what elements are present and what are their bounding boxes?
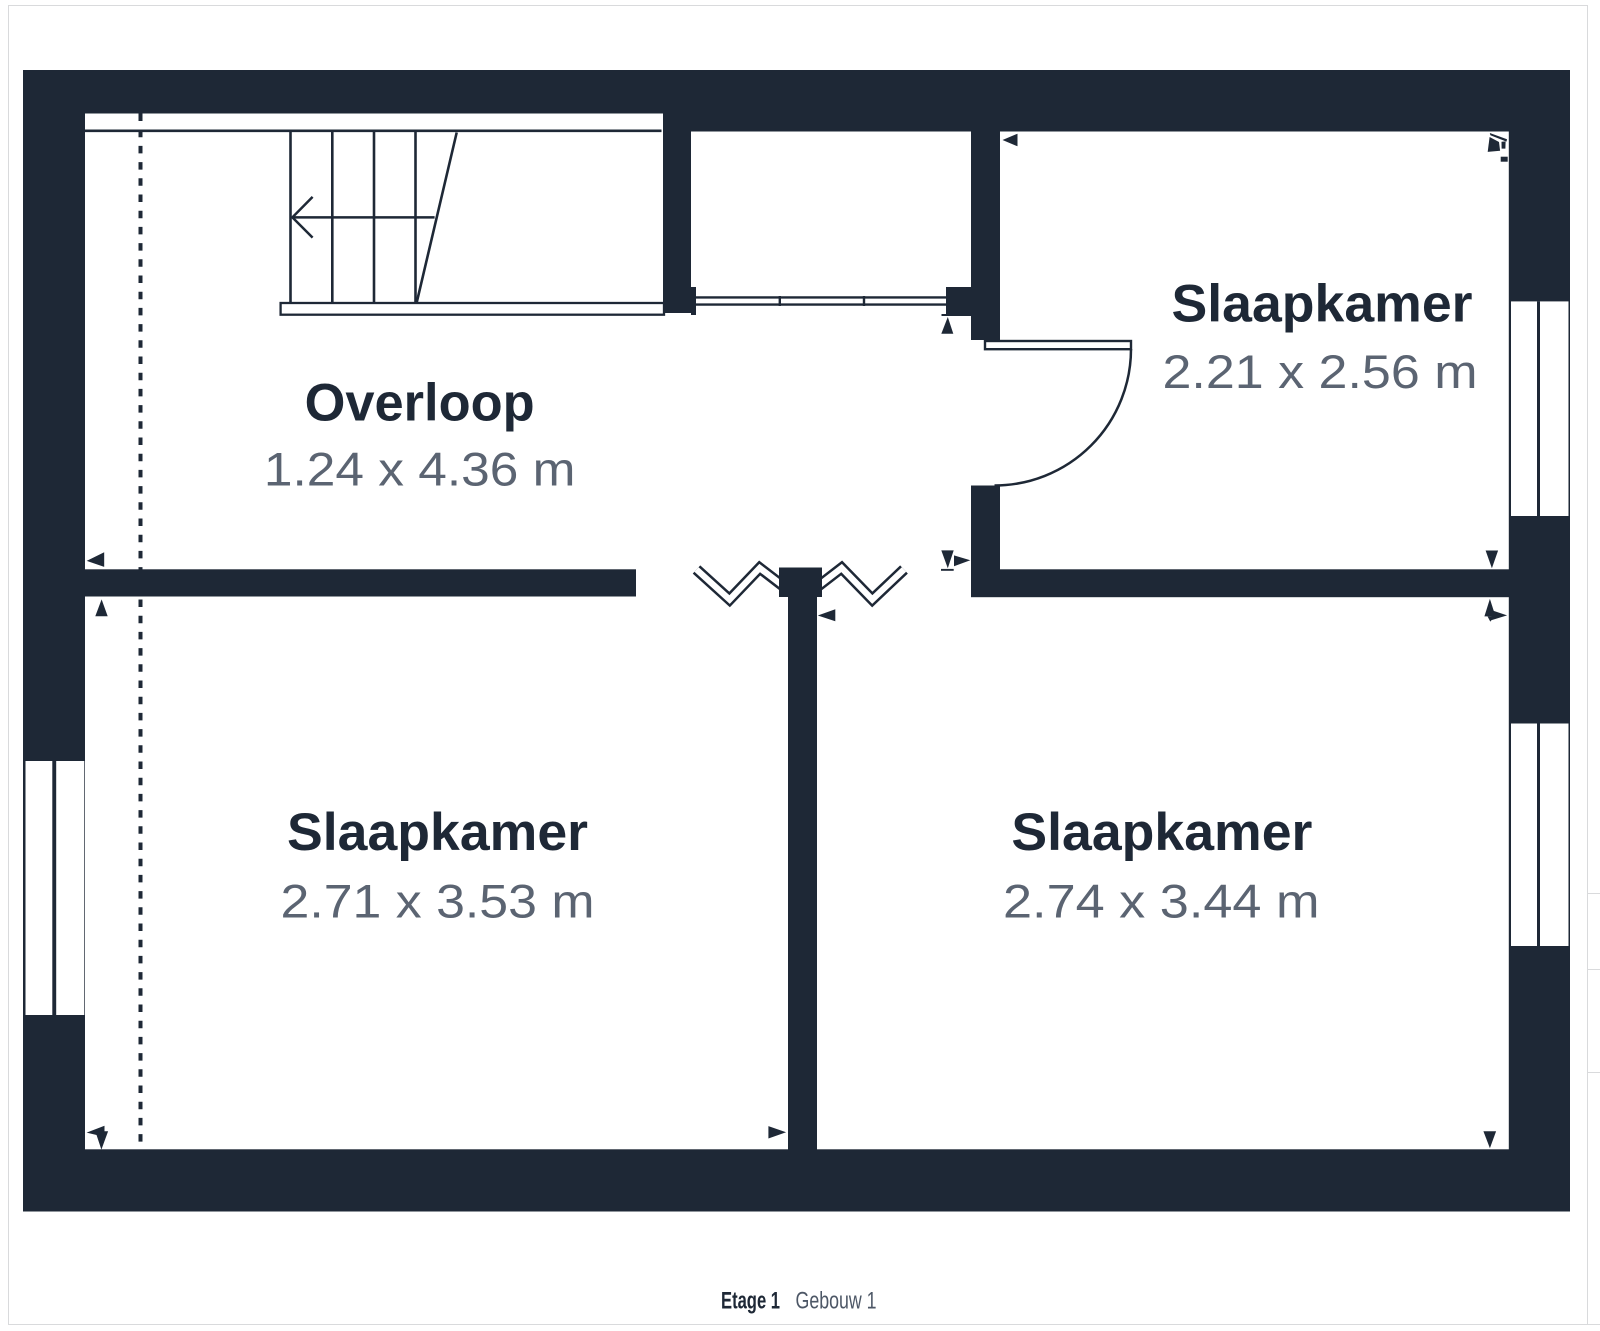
svg-text:2.21 x 2.56 m: 2.21 x 2.56 m xyxy=(1163,346,1478,399)
svg-text:1.24 x 4.36 m: 1.24 x 4.36 m xyxy=(264,444,576,497)
svg-text:Slaapkamer: Slaapkamer xyxy=(287,803,588,862)
svg-text:Slaapkamer: Slaapkamer xyxy=(1172,275,1473,334)
svg-text:Overloop: Overloop xyxy=(305,374,535,433)
svg-text:2.71 x 3.53 m: 2.71 x 3.53 m xyxy=(281,876,595,929)
svg-text:Etage 1: Etage 1 xyxy=(721,1288,780,1315)
svg-text:Gebouw 1: Gebouw 1 xyxy=(796,1288,877,1315)
svg-text:Slaapkamer: Slaapkamer xyxy=(1011,803,1312,862)
svg-text:2.74 x 3.44 m: 2.74 x 3.44 m xyxy=(1003,876,1320,929)
